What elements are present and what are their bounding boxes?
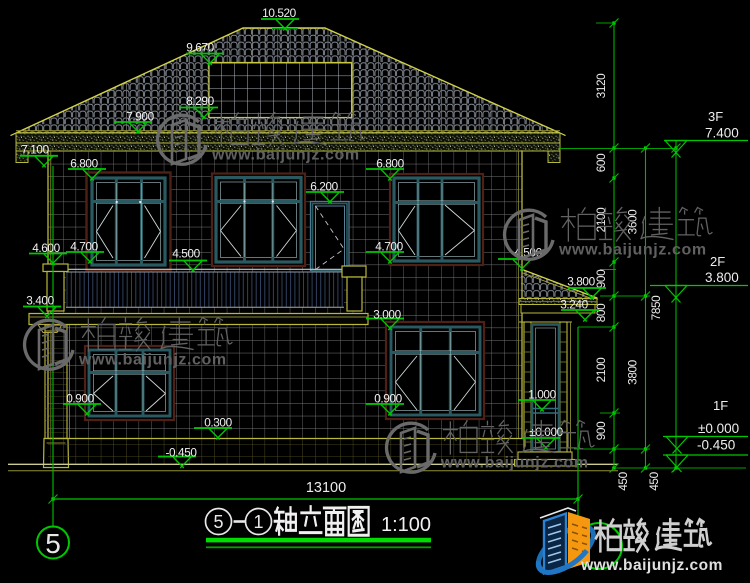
svg-text:8.290: 8.290	[186, 94, 214, 108]
svg-text:3F: 3F	[708, 109, 723, 124]
svg-text:0.300: 0.300	[204, 416, 232, 430]
svg-text:1: 1	[253, 512, 263, 532]
svg-text:4.700: 4.700	[375, 240, 403, 254]
svg-text:6.800: 6.800	[376, 157, 404, 171]
svg-text:5: 5	[213, 512, 223, 532]
svg-text:450: 450	[616, 471, 630, 490]
svg-text:-0.450: -0.450	[697, 438, 735, 453]
svg-text:600: 600	[594, 153, 608, 172]
svg-text:7850: 7850	[649, 295, 663, 320]
svg-text:0.900: 0.900	[66, 392, 94, 406]
svg-text:2100: 2100	[594, 357, 608, 382]
svg-text:3.800: 3.800	[567, 275, 595, 289]
svg-text:0.900: 0.900	[374, 392, 402, 406]
svg-text:5: 5	[45, 528, 61, 559]
svg-text:-0.450: -0.450	[165, 446, 197, 460]
svg-text:4.700: 4.700	[70, 240, 98, 254]
svg-text:9.670: 9.670	[186, 41, 214, 55]
svg-text:450: 450	[647, 471, 661, 490]
svg-text:13100: 13100	[306, 480, 346, 496]
svg-text:10.520: 10.520	[262, 6, 297, 20]
svg-text:6.200: 6.200	[310, 180, 338, 194]
svg-text:1:100: 1:100	[381, 514, 431, 536]
svg-text:6.800: 6.800	[70, 157, 98, 171]
svg-text:2F: 2F	[710, 254, 725, 269]
svg-text:4.600: 4.600	[32, 241, 60, 255]
svg-text:3.800: 3.800	[705, 270, 739, 285]
svg-text:3800: 3800	[626, 359, 640, 384]
svg-text:7.900: 7.900	[126, 110, 154, 124]
svg-text:900: 900	[594, 269, 608, 288]
svg-text:7.100: 7.100	[21, 143, 49, 157]
svg-text:3.400: 3.400	[26, 294, 54, 308]
svg-text:800: 800	[594, 303, 608, 322]
svg-text:7.400: 7.400	[705, 126, 739, 141]
svg-text:900: 900	[594, 421, 608, 440]
svg-text:www.baijunjz.com: www.baijunjz.com	[580, 557, 723, 574]
svg-text:3600: 3600	[626, 209, 640, 234]
svg-text:4.500: 4.500	[172, 247, 200, 261]
svg-text:1.000: 1.000	[528, 388, 556, 402]
svg-text:3120: 3120	[594, 73, 608, 98]
svg-text:1F: 1F	[713, 398, 728, 413]
svg-text:±0.000: ±0.000	[698, 421, 739, 436]
svg-text:3.000: 3.000	[373, 308, 401, 322]
svg-text:3.240: 3.240	[560, 298, 588, 312]
